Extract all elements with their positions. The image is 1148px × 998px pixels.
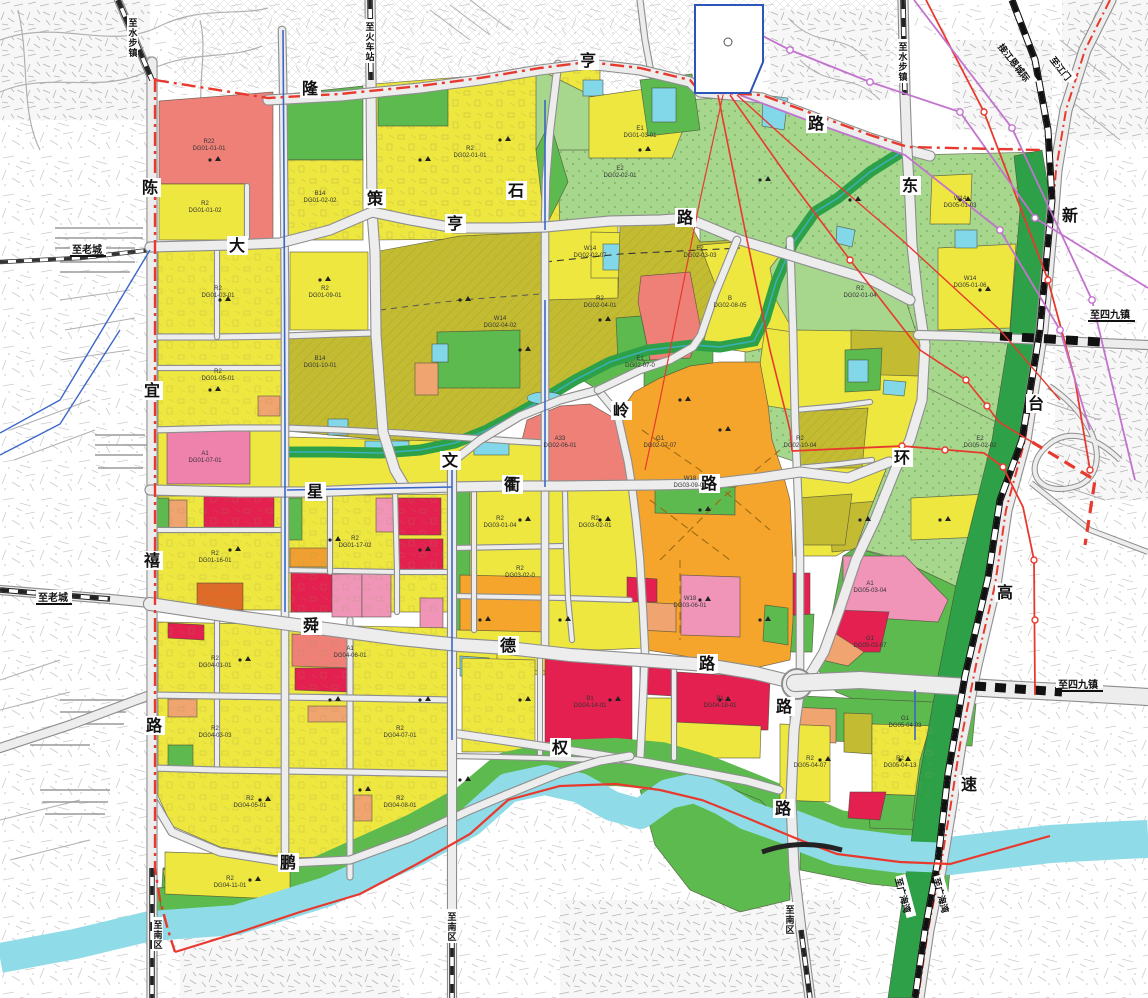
svg-text:DG02-07-0: DG02-07-0 [625,363,655,369]
svg-text:路: 路 [146,716,163,735]
svg-text:DG02-01-01: DG02-01-01 [453,153,487,159]
svg-text:DG04-14-01: DG04-14-01 [573,703,607,709]
svg-text:区: 区 [785,925,794,935]
svg-text:R2: R2 [796,436,804,442]
svg-text:南: 南 [785,914,794,925]
svg-text:DG04-18-01: DG04-18-01 [703,703,737,709]
svg-text:DG05-01-03: DG05-01-03 [943,203,977,209]
svg-text:星: 星 [307,483,323,501]
svg-text:南: 南 [153,929,162,940]
svg-text:宜: 宜 [144,381,160,400]
svg-text:E1: E1 [636,356,644,362]
svg-text:R2: R2 [466,146,474,152]
svg-text:文: 文 [442,451,459,470]
svg-text:R2: R2 [856,286,864,292]
svg-text:DG05-03-07: DG05-03-07 [853,643,887,649]
svg-text:DG02-03-03: DG02-03-03 [683,253,717,259]
svg-text:R22: R22 [203,139,215,145]
svg-text:站: 站 [365,51,374,62]
svg-text:陈: 陈 [142,178,158,197]
svg-text:南: 南 [447,921,456,932]
svg-text:DG01-07-01: DG01-07-01 [188,458,222,464]
svg-text:路: 路 [775,799,792,818]
svg-text:火: 火 [365,32,375,42]
svg-text:G1: G1 [866,636,875,642]
svg-text:DG02-07-07: DG02-07-07 [643,443,677,449]
svg-text:DG04-11-01: DG04-11-01 [214,883,247,889]
svg-text:R2: R2 [351,536,359,542]
svg-text:DG01-17-02: DG01-17-02 [338,543,372,549]
svg-text:R2: R2 [214,286,222,292]
svg-text:镇: 镇 [898,71,907,82]
svg-text:隆: 隆 [302,79,319,98]
svg-text:R2: R2 [226,876,234,882]
svg-text:DG02-08-05: DG02-08-05 [713,303,747,309]
svg-text:W14: W14 [584,246,597,252]
svg-text:权: 权 [551,738,569,757]
svg-text:至: 至 [447,912,456,922]
svg-text:舜: 舜 [303,616,319,635]
svg-text:DG03-01-04: DG03-01-04 [483,523,517,529]
svg-text:B1: B1 [716,696,724,702]
svg-text:区: 区 [153,940,162,950]
svg-text:至老城: 至老城 [38,591,68,604]
svg-text:东: 东 [902,176,918,195]
svg-text:至四九镇: 至四九镇 [1090,308,1130,321]
svg-text:环: 环 [894,449,910,467]
svg-text:R2: R2 [321,286,329,292]
svg-text:E2: E2 [616,166,624,172]
svg-text:石: 石 [507,183,524,200]
svg-text:步: 步 [128,37,137,48]
svg-text:高: 高 [997,583,1013,602]
svg-text:DG05-02-02: DG05-02-02 [963,443,997,449]
svg-text:DG04-01-01: DG04-01-01 [198,663,232,669]
svg-text:DG05-04-13: DG05-04-13 [883,763,917,769]
svg-text:R2: R2 [591,516,599,522]
svg-text:R2: R2 [211,656,219,662]
svg-text:DG05-01-06: DG05-01-06 [953,283,987,289]
svg-text:DG02-04-01: DG02-04-01 [583,303,617,309]
svg-text:DG02-02-01: DG02-02-01 [603,173,637,179]
svg-text:G1: G1 [901,716,910,722]
svg-text:台: 台 [1028,394,1044,413]
svg-text:路: 路 [677,208,694,227]
svg-text:R2: R2 [806,756,814,762]
svg-text:W14: W14 [494,316,507,322]
svg-text:至四九镇: 至四九镇 [1058,678,1098,691]
svg-text:B14: B14 [315,356,326,362]
svg-text:至: 至 [153,920,162,930]
svg-text:A1: A1 [866,581,874,587]
svg-text:R2: R2 [496,516,504,522]
svg-text:R2: R2 [246,796,254,802]
svg-text:DG04-07-01: DG04-07-01 [383,733,417,739]
svg-text:DG04-03-03: DG04-03-03 [198,733,232,739]
svg-text:车: 车 [365,41,374,52]
svg-text:至: 至 [365,22,374,32]
svg-text:亨: 亨 [580,51,596,70]
svg-text:DG01-05-01: DG01-05-01 [201,376,235,382]
svg-text:W14: W14 [964,276,977,282]
svg-text:DG02-01-04: DG02-01-04 [843,293,877,299]
svg-text:R2: R2 [211,551,219,557]
svg-text:DG04-06-01: DG04-06-01 [333,653,367,659]
svg-text:路: 路 [699,654,716,673]
svg-text:亨: 亨 [447,214,463,233]
svg-text:DG01-09-01: DG01-09-01 [308,293,342,299]
svg-text:E2: E2 [696,246,704,252]
svg-text:DG03-02-0: DG03-02-0 [505,573,535,579]
svg-text:DG01-10-01: DG01-10-01 [303,363,337,369]
svg-text:路: 路 [776,697,793,716]
svg-text:A33: A33 [555,436,566,442]
svg-text:DG03-06-01: DG03-06-01 [673,603,707,609]
svg-text:DG01-01-01: DG01-01-01 [192,146,226,152]
svg-text:DG01-01-02: DG01-01-02 [188,208,222,214]
svg-text:镇: 镇 [128,47,137,58]
svg-text:大: 大 [229,236,245,255]
svg-text:DG01-03-01: DG01-03-01 [623,133,657,139]
svg-text:DG01-02-02: DG01-02-02 [303,198,337,204]
svg-text:DG04-05-01: DG04-05-01 [233,803,267,809]
svg-text:至: 至 [785,905,794,915]
svg-text:步: 步 [898,61,907,72]
svg-text:R2: R2 [596,296,604,302]
svg-text:A1: A1 [201,451,209,457]
svg-text:DG05-03-04: DG05-03-04 [853,588,887,594]
svg-text:R2: R2 [201,201,209,207]
svg-text:至: 至 [898,42,907,52]
svg-text:R2: R2 [896,756,904,762]
svg-text:R2: R2 [396,796,404,802]
svg-text:E2: E2 [976,436,984,442]
svg-text:DG02-02-07: DG02-02-07 [573,253,607,259]
svg-text:至: 至 [128,18,137,28]
svg-text:R2: R2 [214,369,222,375]
svg-text:DG05-04-07: DG05-04-07 [793,763,827,769]
svg-text:DG02-04-02: DG02-04-02 [483,323,517,329]
svg-text:G1: G1 [656,436,665,442]
svg-text:DG04-08-01: DG04-08-01 [383,803,417,809]
svg-text:区: 区 [447,932,456,942]
svg-text:DG03-09-01: DG03-09-01 [673,483,707,489]
svg-text:DG03-02-01: DG03-02-01 [578,523,612,529]
svg-text:新: 新 [1062,206,1078,225]
svg-text:DG01-16-01: DG01-16-01 [198,558,232,564]
svg-text:W18: W18 [684,476,697,482]
svg-text:DG02-06-01: DG02-06-01 [543,443,577,449]
svg-text:速: 速 [961,776,977,794]
svg-text:水: 水 [898,51,908,62]
svg-text:DG05-04-03: DG05-04-03 [888,723,922,729]
svg-text:W14: W14 [954,196,967,202]
svg-text:水: 水 [128,27,138,38]
svg-text:A1: A1 [346,646,354,652]
svg-text:R2: R2 [396,726,404,732]
svg-text:B14: B14 [315,191,326,197]
svg-text:E1: E1 [636,126,644,132]
svg-text:W18: W18 [684,596,697,602]
svg-text:B1: B1 [586,696,594,702]
svg-text:R2: R2 [516,566,524,572]
svg-text:衢: 衢 [504,475,520,494]
svg-text:至老城: 至老城 [72,243,102,256]
svg-text:鹏: 鹏 [280,853,296,872]
svg-text:DG01-03-01: DG01-03-01 [201,293,235,299]
svg-text:R2: R2 [211,726,219,732]
svg-text:岭: 岭 [613,401,629,420]
svg-text:禧: 禧 [144,551,160,570]
svg-text:B: B [728,296,732,302]
svg-text:路: 路 [808,114,825,133]
svg-text:德: 德 [500,636,516,655]
svg-text:策: 策 [366,189,384,208]
svg-text:DG02-10-04: DG02-10-04 [783,443,817,449]
